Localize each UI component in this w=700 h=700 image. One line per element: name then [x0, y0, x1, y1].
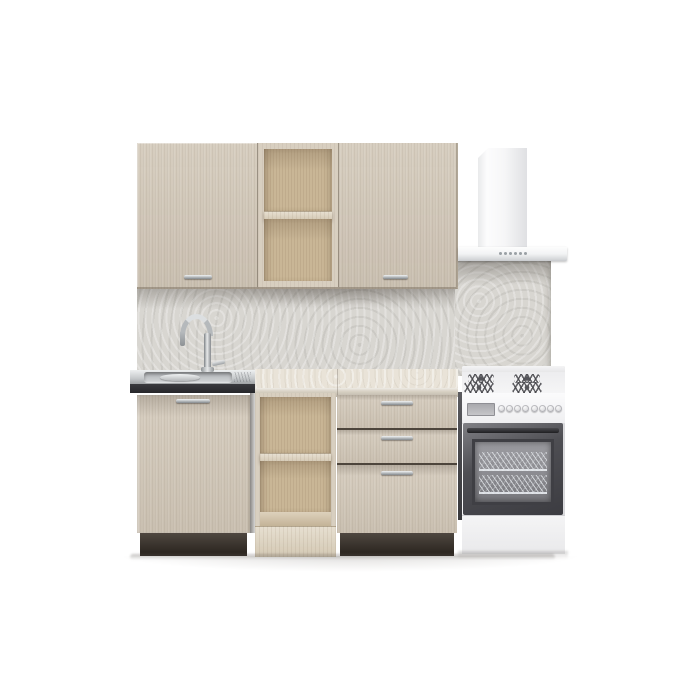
hood-button: [499, 252, 502, 255]
under-hood-shadow: [455, 261, 551, 285]
kitchen-set-render: [0, 0, 700, 700]
upper-left-door-handle: [184, 275, 212, 279]
oven-rack-bottom: [479, 475, 547, 494]
upper-left-door: [137, 143, 258, 289]
hood-buttons: [499, 252, 527, 255]
hood-button: [519, 252, 522, 255]
stove-display: [467, 403, 495, 416]
stove-floor-shadow: [458, 551, 568, 559]
stove-bottom-panel: [462, 515, 565, 554]
drawer-2-handle: [381, 436, 413, 440]
stove-body: [462, 366, 565, 553]
stove-cooktop: [462, 372, 565, 393]
oven-window: [472, 439, 554, 505]
drawer-top-shadow: [337, 465, 457, 533]
hood-button: [514, 252, 517, 255]
oven-door: [463, 423, 563, 515]
sink-cabinet-plinth: [140, 533, 247, 556]
hood-button: [524, 252, 527, 255]
stove-knob: [522, 405, 529, 412]
stove-knob: [555, 405, 562, 412]
drawer-unit: [337, 395, 457, 533]
upper-open-shelf-unit: [258, 143, 338, 289]
drawer-1-handle: [381, 401, 413, 405]
sink-front-edge: [130, 384, 256, 393]
drawer-3-handle: [381, 471, 413, 475]
lower-shelf-compartment-bottom: [260, 461, 331, 512]
lower-shelf-base-panel: [255, 526, 336, 557]
hood-canopy: [458, 247, 567, 261]
burner-grate-front-right: [512, 382, 542, 393]
lower-shelf-compartment-top: [260, 397, 331, 453]
stove-knob: [539, 405, 546, 412]
stove-knob: [531, 405, 538, 412]
gas-stove: [458, 366, 565, 553]
stove-knob: [498, 405, 505, 412]
oven-rack-top: [479, 452, 547, 471]
stove-knob-row: [498, 404, 562, 413]
stove-control-panel: [462, 393, 565, 424]
lower-open-shelf-unit: [255, 393, 336, 556]
lower-shelf-floor: [260, 512, 331, 526]
drawer-2: [337, 430, 457, 463]
countertop-surface: [255, 369, 458, 388]
drawer-3: [337, 465, 457, 533]
faucet-spout: [180, 332, 185, 346]
upper-right-door: [338, 143, 458, 289]
countertop: [255, 369, 458, 396]
stove-knob: [506, 405, 513, 412]
sink-drain-plate: [160, 374, 200, 381]
upper-right-door-handle: [383, 275, 408, 279]
faucet-base: [201, 367, 214, 372]
hood-button: [509, 252, 512, 255]
drawer-top-shadow: [337, 430, 457, 463]
burner-grate-front-left: [464, 382, 494, 393]
drawer-unit-plinth: [340, 533, 454, 556]
upper-shelf-compartment-top: [264, 149, 332, 211]
sink-cabinet-handle: [176, 399, 210, 403]
under-cabinet-shadow: [137, 287, 455, 309]
drawer-top-shadow: [337, 395, 457, 428]
sink-cabinet-door: [137, 395, 250, 533]
hood-duct: [478, 148, 527, 247]
countertop-seam: [337, 369, 338, 396]
drawer-1: [337, 395, 457, 428]
stove-knob: [547, 405, 554, 412]
sink-drainboard: [234, 372, 251, 382]
upper-shelf-compartment-bottom: [264, 219, 332, 281]
stove-knob: [514, 405, 521, 412]
door-top-shadow: [137, 395, 250, 533]
oven-handle: [467, 428, 559, 433]
hood-button: [504, 252, 507, 255]
